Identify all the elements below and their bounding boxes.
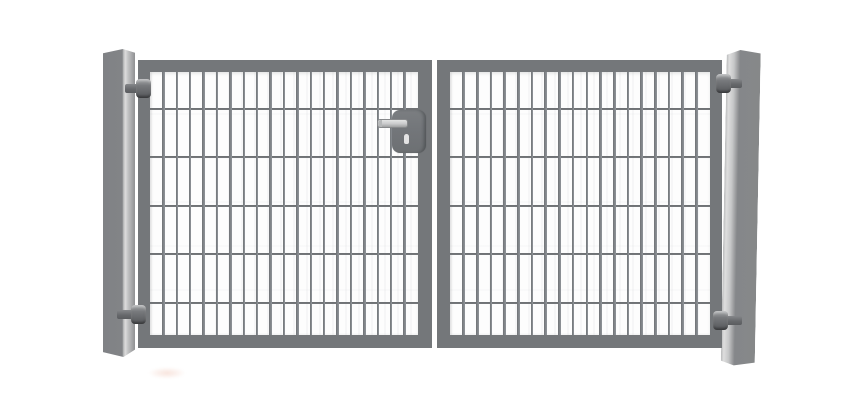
lock-plate bbox=[392, 110, 426, 153]
mesh-vertical-bar bbox=[599, 72, 602, 335]
mesh-vertical-bar bbox=[462, 72, 465, 335]
mesh-vertical-bar bbox=[202, 72, 205, 335]
mesh-vertical-bar bbox=[544, 72, 547, 335]
watermark-smudge bbox=[148, 367, 186, 379]
mesh-vertical-bar bbox=[162, 72, 165, 335]
hinge-bottom-right bbox=[713, 311, 742, 331]
mesh-vertical-bar bbox=[627, 72, 630, 335]
mesh-vertical-bar bbox=[323, 72, 326, 335]
mesh-vertical-bar bbox=[531, 72, 534, 335]
mesh-vertical-bar bbox=[269, 72, 272, 335]
mesh-vertical-bar bbox=[363, 72, 366, 335]
mesh-vertical-bar bbox=[310, 72, 313, 335]
mesh-vertical-bar bbox=[243, 72, 246, 335]
mesh-vertical-bar bbox=[572, 72, 575, 335]
hinge-knob bbox=[716, 74, 731, 93]
mesh-vertical-bar bbox=[377, 72, 380, 335]
hinge-top-left bbox=[125, 79, 151, 98]
mesh-vertical-bar bbox=[296, 72, 299, 335]
mesh-vertical-bar bbox=[229, 72, 232, 335]
mesh-vertical-bar bbox=[216, 72, 219, 335]
left-wing-mesh-panel bbox=[150, 72, 418, 335]
mesh-vertical-bar bbox=[668, 72, 671, 335]
right-wing-mesh-panel bbox=[450, 72, 710, 335]
mesh-vertical-bar bbox=[695, 72, 698, 335]
mesh-vertical-bar bbox=[640, 72, 643, 335]
hinge-knob bbox=[131, 305, 146, 324]
mesh-vertical-bar bbox=[256, 72, 259, 335]
mesh-vertical-bar bbox=[681, 72, 684, 335]
mesh-vertical-bar bbox=[654, 72, 657, 335]
mesh-vertical-bar bbox=[613, 72, 616, 335]
hinge-top-right bbox=[716, 74, 742, 93]
mesh-vertical-bar bbox=[476, 72, 479, 335]
hinge-bottom-left bbox=[117, 305, 146, 325]
right-gate-wing bbox=[437, 60, 722, 348]
gate-product-image bbox=[0, 0, 855, 402]
mesh-vertical-bar bbox=[558, 72, 561, 335]
mesh-vertical-bar bbox=[586, 72, 589, 335]
mesh-vertical-bar bbox=[350, 72, 353, 335]
mesh-vertical-bar bbox=[503, 72, 506, 335]
mesh-vertical-bar bbox=[176, 72, 179, 335]
mesh-vertical-bar bbox=[517, 72, 520, 335]
mesh-vertical-bar bbox=[189, 72, 192, 335]
hinge-knob bbox=[136, 79, 151, 98]
mesh-vertical-bar bbox=[336, 72, 339, 335]
mesh-vertical-bar bbox=[390, 72, 393, 335]
left-gate-wing bbox=[138, 60, 432, 348]
keyhole bbox=[404, 134, 409, 144]
lock-handle-lever bbox=[377, 119, 408, 128]
mesh-vertical-bar bbox=[283, 72, 286, 335]
hinge-knob bbox=[713, 311, 728, 330]
mesh-vertical-bar bbox=[490, 72, 493, 335]
